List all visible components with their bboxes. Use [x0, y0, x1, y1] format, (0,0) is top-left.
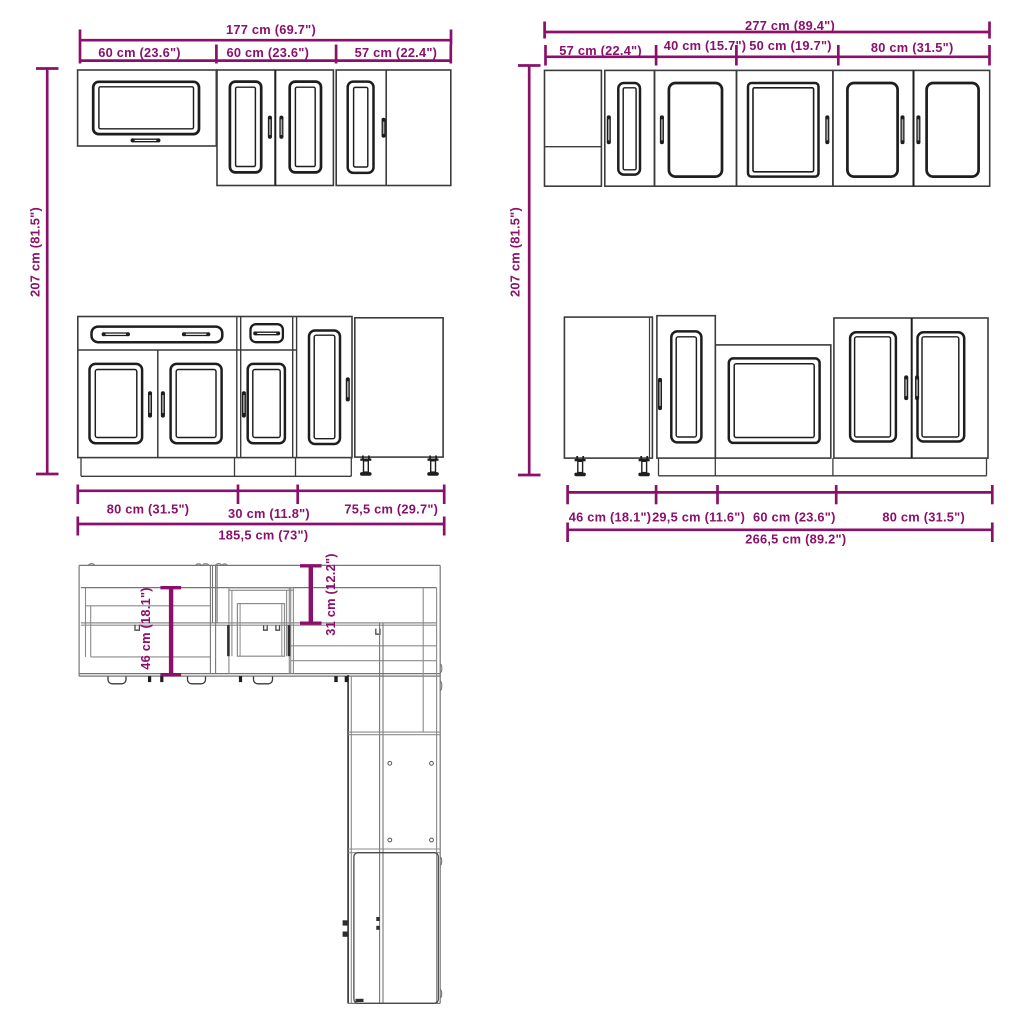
svg-text:177 cm (69.7"): 177 cm (69.7"): [226, 22, 316, 37]
svg-text:185,5 cm (73"): 185,5 cm (73"): [218, 528, 308, 543]
svg-text:60 cm (23.6"): 60 cm (23.6"): [227, 45, 310, 60]
svg-text:57 cm (22.4"): 57 cm (22.4"): [355, 45, 438, 60]
svg-text:207 cm (81.5"): 207 cm (81.5"): [508, 207, 523, 297]
svg-text:207 cm (81.5"): 207 cm (81.5"): [28, 207, 43, 297]
svg-text:80 cm (31.5"): 80 cm (31.5"): [871, 40, 954, 55]
svg-text:60 cm (23.6"): 60 cm (23.6"): [98, 45, 181, 60]
svg-text:75,5 cm (29.7"): 75,5 cm (29.7"): [344, 502, 438, 517]
svg-text:46 cm (18.1"): 46 cm (18.1"): [138, 587, 153, 670]
svg-text:31 cm (12.2"): 31 cm (12.2"): [323, 553, 338, 636]
svg-text:50 cm (19.7"): 50 cm (19.7"): [749, 38, 832, 53]
svg-text:60 cm (23.6"): 60 cm (23.6"): [753, 510, 836, 525]
svg-text:40 cm (15.7"): 40 cm (15.7"): [664, 38, 747, 53]
svg-text:57 cm (22.4"): 57 cm (22.4"): [559, 43, 642, 58]
svg-text:29,5 cm (11.6"): 29,5 cm (11.6"): [652, 510, 745, 525]
svg-text:30 cm (11.8"): 30 cm (11.8"): [228, 506, 310, 521]
svg-text:277 cm (89.4"): 277 cm (89.4"): [745, 18, 835, 33]
svg-text:266,5 cm (89.2"): 266,5 cm (89.2"): [745, 532, 846, 547]
svg-text:80 cm (31.5"): 80 cm (31.5"): [107, 502, 190, 517]
svg-text:46 cm (18.1"): 46 cm (18.1"): [569, 510, 652, 525]
svg-text:80 cm (31.5"): 80 cm (31.5"): [882, 510, 965, 525]
